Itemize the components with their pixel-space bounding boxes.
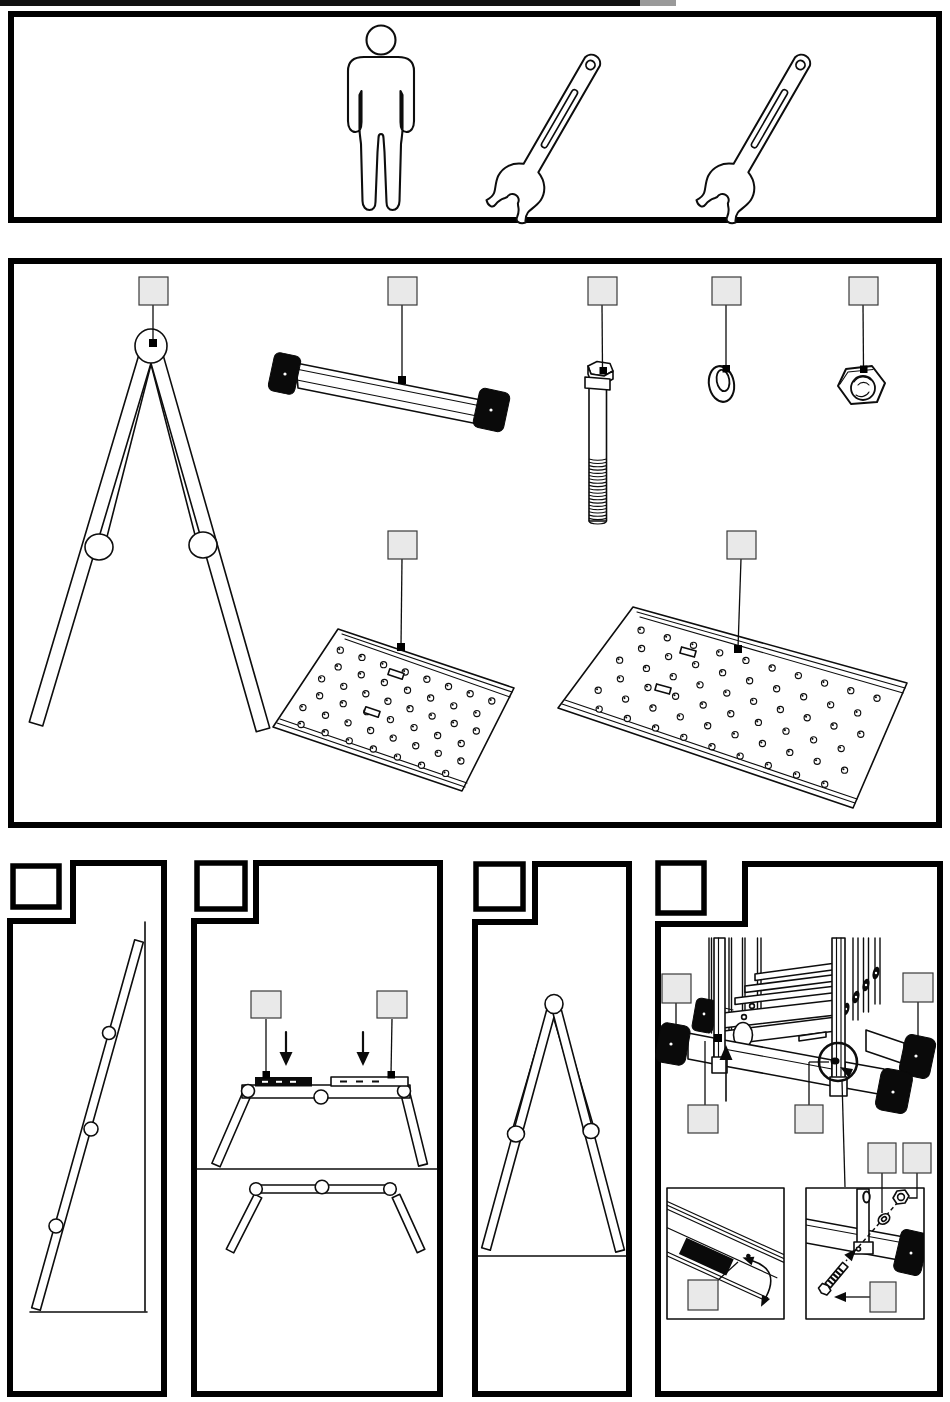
callout-box-washer-detail (868, 1143, 896, 1173)
callout-box-nut-detail (903, 1143, 931, 1173)
callout-box-platform-large (727, 531, 756, 559)
instruction-sheet (0, 0, 950, 1402)
callout-box-platform-small (388, 531, 417, 559)
part-stabilizer-bar (267, 277, 511, 433)
step-panel-3 (475, 864, 629, 1394)
callout-box-nut (849, 277, 878, 305)
hinge-circle (85, 534, 113, 560)
callout-box-step2-left (251, 991, 281, 1018)
apex-hinge-circle (545, 995, 563, 1014)
callout-box-bolt-location (795, 1105, 823, 1133)
callout-box-cap-pad (688, 1280, 718, 1310)
step-panel-1 (10, 863, 164, 1394)
end-cap-icon (655, 1022, 691, 1067)
part-hex-nut (838, 277, 885, 404)
callout-box-step2-right (377, 991, 407, 1018)
step-panel-2 (194, 863, 440, 1394)
step-panel-4 (643, 863, 940, 1394)
tools-panel (11, 14, 939, 226)
folded-trestle-with-bars (212, 991, 428, 1167)
hinge-circle (508, 1126, 525, 1142)
detail-inset-left (643, 1188, 786, 1319)
callout-box-bolt-detail (870, 1282, 896, 1312)
trestle-leg (212, 1094, 250, 1167)
step-number-box-2 (197, 863, 245, 909)
part-trestle-a-frame (29, 277, 269, 732)
opened-a-frame (482, 995, 625, 1253)
part-platform-small (273, 531, 514, 791)
callout-box-washer (712, 277, 741, 305)
ladder-base-assembly (655, 938, 937, 1115)
trestle-leg (392, 1194, 425, 1252)
trestle-leg (402, 1095, 428, 1166)
step-number-box-4 (658, 863, 704, 913)
folded-trestle-plain (226, 1180, 424, 1253)
instruction-page (0, 0, 950, 1402)
callout-box-bar (388, 277, 417, 305)
step-panel-3-border (475, 864, 629, 1394)
person-icon (348, 26, 414, 211)
hinge-circle (49, 1219, 63, 1233)
hinge-circle (189, 532, 217, 558)
ladder-steps (723, 963, 836, 1048)
part-washer (706, 277, 741, 404)
tools-panel-border (11, 14, 939, 220)
part-platform-large (558, 531, 907, 808)
step-number-box-3 (476, 864, 523, 909)
hinge-circle (103, 1027, 116, 1040)
part-hex-bolt (585, 277, 617, 524)
step-number-box-1 (13, 866, 59, 907)
hinge-circle (84, 1122, 98, 1136)
callout-box-bar-left (688, 1105, 718, 1133)
down-arrow-icon (280, 1032, 293, 1066)
parts-panel (11, 261, 939, 825)
callout-box-cap-right (903, 973, 933, 1002)
trestle-leg (226, 1194, 261, 1253)
down-arrow-icon (357, 1032, 370, 1066)
scan-artifact-bar (0, 0, 676, 6)
hinge-circle (583, 1124, 599, 1139)
leg-slot-hole (863, 1192, 869, 1203)
callout-box-cap-left (662, 974, 691, 1003)
detail-inset-right (806, 1143, 931, 1319)
callout-box-trestle (139, 277, 168, 305)
callout-box-bolt (588, 277, 617, 305)
wrench-icon-1 (483, 44, 617, 227)
wrench-icon-2 (693, 44, 827, 227)
